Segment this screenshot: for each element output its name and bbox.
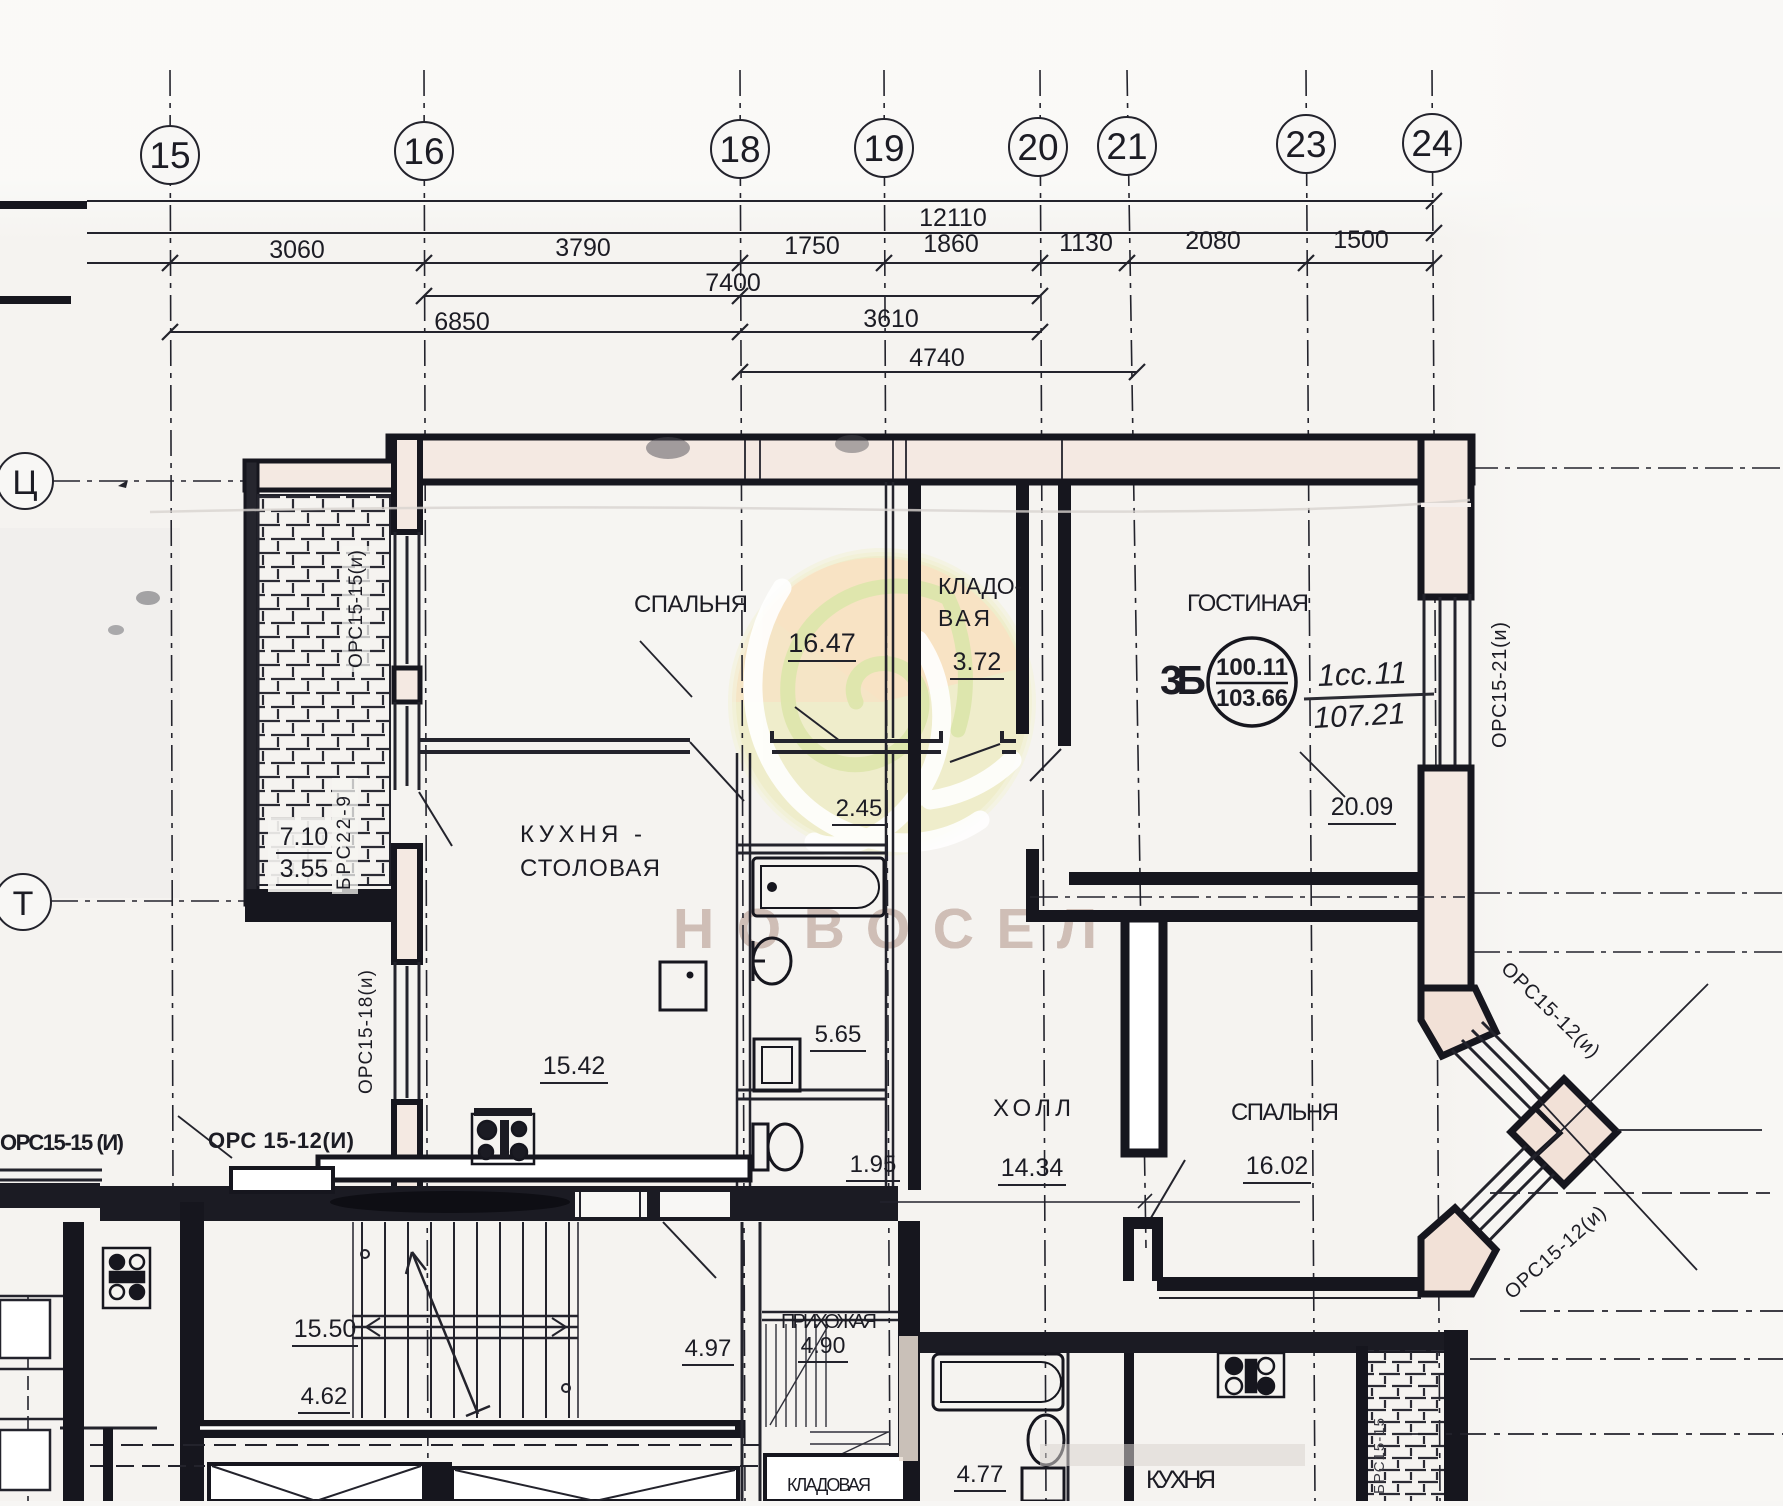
svg-text:1500: 1500: [1333, 226, 1389, 254]
svg-text:19: 19: [863, 128, 904, 169]
svg-text:20.09: 20.09: [1331, 793, 1394, 821]
svg-text:ВАЯ: ВАЯ: [938, 605, 990, 631]
svg-text:20: 20: [1017, 127, 1058, 168]
svg-text:14.34: 14.34: [1001, 1154, 1064, 1182]
svg-text:КУХНЯ: КУХНЯ: [1146, 1466, 1216, 1494]
svg-text:24: 24: [1411, 123, 1452, 164]
svg-text:1130: 1130: [1059, 229, 1113, 257]
svg-text:16.47: 16.47: [788, 628, 856, 658]
svg-text:ПРИХОЖАЯ: ПРИХОЖАЯ: [781, 1311, 877, 1333]
svg-text:ОРС15-18(и): ОРС15-18(и): [356, 970, 377, 1094]
svg-text:Ц: Ц: [12, 464, 37, 502]
svg-text:ОРС 15-12(И): ОРС 15-12(И): [208, 1128, 354, 1153]
svg-text:4740: 4740: [909, 344, 965, 372]
svg-text:15.42: 15.42: [543, 1052, 606, 1080]
svg-text:3Б: 3Б: [1160, 657, 1206, 703]
svg-text:4.62: 4.62: [301, 1383, 348, 1410]
svg-text:ОРС15-15 (И): ОРС15-15 (И): [0, 1130, 124, 1155]
svg-text:16.02: 16.02: [1246, 1152, 1309, 1180]
svg-text:3060: 3060: [269, 236, 325, 264]
svg-text:КУХНЯ -: КУХНЯ -: [520, 821, 642, 848]
svg-text:4.77: 4.77: [957, 1461, 1004, 1488]
svg-text:15: 15: [149, 135, 190, 176]
svg-text:1750: 1750: [784, 232, 840, 260]
svg-text:1.95: 1.95: [850, 1151, 897, 1178]
svg-text:ОРС15-21(и): ОРС15-21(и): [1489, 622, 1511, 748]
svg-text:23: 23: [1285, 124, 1326, 165]
svg-text:12110: 12110: [919, 204, 987, 232]
svg-text:2080: 2080: [1185, 227, 1241, 255]
svg-text:3.72: 3.72: [953, 648, 1002, 676]
svg-text:БРС15-15: БРС15-15: [1371, 1418, 1388, 1494]
svg-text:КЛАДОВАЯ: КЛАДОВАЯ: [787, 1475, 871, 1495]
svg-text:4.90: 4.90: [801, 1332, 846, 1358]
svg-text:ОРС15-15(и): ОРС15-15(и): [346, 550, 367, 668]
svg-text:СПАЛЬНЯ: СПАЛЬНЯ: [634, 591, 748, 618]
svg-text:3790: 3790: [555, 234, 611, 262]
svg-text:7.10: 7.10: [280, 823, 329, 851]
svg-text:2.45: 2.45: [836, 795, 883, 822]
svg-text:ГОСТИНАЯ: ГОСТИНАЯ: [1187, 590, 1309, 617]
svg-text:21: 21: [1106, 126, 1147, 167]
svg-text:6850: 6850: [434, 308, 490, 336]
svg-text:КЛАДО-: КЛАДО-: [938, 573, 1022, 599]
svg-text:5.65: 5.65: [815, 1021, 862, 1048]
svg-text:100.11: 100.11: [1216, 654, 1288, 681]
svg-text:16: 16: [403, 131, 444, 172]
svg-text:4.97: 4.97: [685, 1335, 732, 1362]
svg-text:18: 18: [719, 129, 760, 170]
svg-text:103.66: 103.66: [1216, 685, 1288, 712]
svg-text:1сс.11: 1сс.11: [1317, 655, 1407, 693]
svg-text:3.55: 3.55: [280, 855, 329, 883]
svg-text:107.21: 107.21: [1313, 697, 1406, 735]
svg-text:15.50: 15.50: [294, 1315, 357, 1343]
svg-text:Т: Т: [13, 885, 34, 923]
svg-text:1860: 1860: [923, 230, 979, 258]
svg-text:СПАЛЬНЯ: СПАЛЬНЯ: [1231, 1099, 1339, 1126]
svg-text:НОВОСЕЛ: НОВОСЕЛ: [673, 897, 1110, 961]
svg-text:7400: 7400: [705, 269, 761, 297]
svg-text:3610: 3610: [863, 305, 919, 333]
svg-text:СТОЛОВАЯ: СТОЛОВАЯ: [520, 855, 660, 882]
